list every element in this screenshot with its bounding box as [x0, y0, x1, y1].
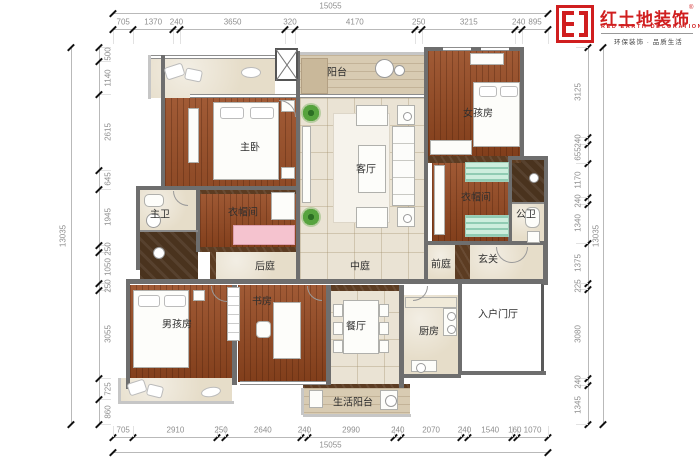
- dim-number: 1370: [144, 18, 162, 27]
- floorplan-canvas: 红土地装饰 ® RED EARTH DECORATION 环保装饰 · 品质生活…: [0, 0, 700, 467]
- dim-tick: [544, 10, 551, 17]
- dim-number: 2990: [342, 426, 360, 435]
- dim-ext: [415, 31, 416, 44]
- washing-machine: [380, 390, 398, 410]
- dim-number: 240: [298, 426, 311, 435]
- dim-number: 1070: [524, 426, 542, 435]
- dim-number: 1540: [481, 426, 499, 435]
- room-entry-hall: [462, 283, 544, 371]
- logo-mark-icon: [556, 5, 594, 43]
- dim-number: 1945: [104, 208, 113, 226]
- dim-number: 15055: [319, 2, 341, 11]
- label-boy-room: 男孩房: [162, 316, 192, 331]
- dim-number: 1140: [104, 69, 113, 86]
- wardrobe: [434, 165, 445, 235]
- wall: [136, 186, 140, 270]
- wall: [543, 241, 548, 285]
- wardrobe: [188, 108, 199, 163]
- wall: [196, 190, 200, 252]
- dim-ext: [576, 243, 588, 244]
- dim-number: 1170: [574, 172, 583, 189]
- bay-window: [150, 55, 275, 59]
- chair: [379, 340, 389, 353]
- dim-number: 500: [104, 48, 113, 61]
- label-public-bath: 公卫: [516, 206, 536, 221]
- dim-number: 2615: [104, 123, 113, 141]
- dim-number: 160: [508, 426, 521, 435]
- dim-ext: [180, 31, 181, 44]
- wardrobe: [430, 140, 472, 155]
- stove: [443, 308, 457, 336]
- drain: [153, 247, 165, 259]
- plant: [301, 207, 321, 227]
- room-master-bath-shower: [140, 232, 198, 279]
- dim-number: 240: [391, 426, 404, 435]
- dim-number: 240: [574, 194, 583, 207]
- logo-divider: [601, 33, 693, 34]
- threshold: [330, 285, 400, 291]
- label-balcony: 阳台: [327, 64, 347, 79]
- side-table: [397, 207, 415, 227]
- dim-ext: [576, 47, 588, 48]
- wall: [458, 371, 546, 375]
- balcony-railing: [303, 414, 411, 417]
- lounge-chair: [375, 59, 394, 78]
- dim-line: [588, 47, 589, 424]
- bay-railing: [118, 401, 234, 404]
- label-girl-room: 女孩房: [463, 105, 493, 120]
- nightstand: [281, 167, 295, 179]
- nightstand: [193, 290, 205, 301]
- window: [190, 94, 296, 98]
- dim-number: 3650: [224, 18, 242, 27]
- label-back-court: 后庭: [255, 258, 275, 273]
- plant: [301, 103, 321, 123]
- dim-line: [603, 47, 604, 424]
- room-public-bath-shower: [512, 160, 544, 203]
- dim-ext: [101, 378, 111, 379]
- dim-ext: [548, 426, 549, 437]
- chair: [333, 340, 343, 353]
- mat: [301, 58, 328, 94]
- cabinet: [465, 162, 509, 182]
- floorplan: 阳台 主卧 女孩房 客厅 衣帽间 主卫 衣帽间 公卫 后庭 中庭 前庭 玄关 男…: [113, 47, 548, 424]
- wall: [399, 285, 404, 388]
- dim-number: 250: [412, 18, 425, 27]
- registered-mark: ®: [689, 5, 693, 11]
- cabinet: [465, 215, 509, 237]
- window: [481, 47, 509, 51]
- cushion: [241, 67, 261, 78]
- label-kitchen: 厨房: [419, 323, 439, 338]
- dim-ext: [101, 170, 111, 171]
- dim-number: 1375: [574, 254, 583, 272]
- dim-number: 250: [214, 426, 227, 435]
- dresser: [470, 53, 504, 65]
- tv-console: [302, 126, 311, 203]
- company-logo: 红土地装饰 ® RED EARTH DECORATION 环保装饰 · 品质生活: [556, 5, 696, 49]
- chair: [333, 304, 343, 317]
- dim-ext: [101, 399, 111, 400]
- dim-tick: [544, 449, 551, 456]
- dim-number: 13035: [59, 224, 68, 246]
- dim-ext: [101, 189, 111, 190]
- cabinet: [271, 192, 295, 220]
- label-mid-court: 中庭: [350, 258, 370, 273]
- label-master-bedroom: 主卧: [240, 139, 260, 154]
- dim-tick: [67, 421, 74, 428]
- window: [443, 47, 471, 51]
- dim-ext: [295, 31, 296, 44]
- bath-divider: [512, 202, 544, 204]
- laundry-sink: [309, 390, 323, 408]
- desk: [273, 302, 301, 359]
- dim-number: 240: [458, 426, 471, 435]
- wall: [426, 47, 524, 51]
- label-front-court: 前庭: [431, 256, 451, 271]
- dim-ext: [173, 31, 174, 44]
- wall: [161, 55, 165, 190]
- dim-ext: [422, 31, 423, 44]
- shaft: [275, 48, 298, 81]
- wall: [126, 279, 547, 284]
- window: [240, 381, 326, 385]
- dim-number: 15055: [319, 441, 341, 450]
- dim-number: 705: [116, 426, 129, 435]
- sofa: [392, 126, 415, 206]
- dim-number: 3215: [460, 18, 478, 27]
- wall: [544, 156, 548, 245]
- label-cloak-right: 衣帽间: [461, 189, 491, 204]
- dim-number: 2910: [167, 426, 185, 435]
- wall: [508, 156, 548, 160]
- dim-number: 1345: [574, 396, 583, 414]
- dim-number: 3055: [104, 325, 113, 343]
- wall: [138, 186, 300, 190]
- label-cloak-left: 衣帽间: [228, 204, 258, 219]
- dim-number: 225: [574, 279, 583, 292]
- dim-ext: [548, 31, 549, 44]
- dim-ext: [522, 31, 523, 44]
- dim-ext: [113, 426, 114, 437]
- dim-ext: [515, 31, 516, 44]
- kitchen-sink: [411, 360, 437, 372]
- dim-number: 725: [104, 382, 113, 395]
- wall: [403, 374, 461, 378]
- chair: [333, 322, 343, 335]
- dim-ext: [576, 424, 588, 425]
- dim-number: 860: [104, 405, 113, 418]
- dim-number: 240: [574, 375, 583, 388]
- dim-line: [113, 13, 548, 14]
- dim-ext: [101, 61, 111, 62]
- chair: [379, 322, 389, 335]
- dim-number: 1340: [574, 215, 583, 233]
- dim-number: 895: [528, 18, 541, 27]
- label-entry-hall: 入户门厅: [478, 306, 518, 321]
- dim-line: [113, 437, 548, 438]
- brand-tagline: 环保装饰 · 品质生活: [614, 36, 683, 46]
- wall: [296, 51, 300, 284]
- dim-line: [99, 47, 100, 424]
- window: [300, 94, 424, 98]
- armchair: [356, 207, 388, 228]
- bay-side: [148, 55, 151, 99]
- threshold: [210, 252, 216, 281]
- wall: [126, 279, 130, 389]
- dim-number: 655: [574, 147, 583, 160]
- side-table: [397, 105, 415, 125]
- sink: [527, 231, 540, 243]
- small-table: [394, 65, 405, 76]
- dim-ext: [285, 31, 286, 44]
- dim-ext: [113, 31, 114, 44]
- label-study: 书房: [252, 293, 272, 308]
- dim-number: 250: [104, 242, 113, 255]
- shower-head: [529, 173, 539, 183]
- dim-number: 320: [283, 18, 296, 27]
- dim-number: 1050: [104, 258, 113, 276]
- wall: [424, 47, 428, 284]
- dim-number: 13035: [592, 224, 601, 246]
- balcony-side: [301, 388, 304, 415]
- chair: [379, 304, 389, 317]
- dim-number: 2640: [254, 426, 272, 435]
- bookshelf: [227, 287, 240, 341]
- dim-number: 645: [104, 173, 113, 186]
- dim-line: [71, 47, 72, 424]
- dim-number: 250: [104, 279, 113, 292]
- label-dining: 餐厅: [346, 318, 366, 333]
- label-entry: 玄关: [478, 251, 498, 266]
- bay-side: [118, 378, 121, 404]
- dim-ext: [101, 424, 111, 425]
- dim-number: 4170: [346, 18, 364, 27]
- dim-ext: [101, 94, 111, 95]
- dim-tick: [599, 421, 606, 428]
- chair: [256, 321, 271, 338]
- label-living-room: 客厅: [356, 161, 376, 176]
- threshold: [455, 245, 470, 281]
- wall: [520, 47, 524, 160]
- room-back-court: [210, 252, 298, 281]
- dim-ext: [133, 426, 134, 437]
- dim-number: 3080: [574, 325, 583, 343]
- dim-number: 2070: [422, 426, 440, 435]
- dim-ext: [576, 163, 588, 164]
- wall: [326, 285, 331, 385]
- bath-divider: [140, 230, 198, 232]
- dim-number: 705: [116, 18, 129, 27]
- dim-number: 240: [170, 18, 183, 27]
- label-service-balcony: 生活阳台: [333, 394, 373, 409]
- dim-number: 240: [512, 18, 525, 27]
- brand-name-english: RED EARTH DECORATION: [601, 24, 700, 30]
- wall: [458, 283, 462, 375]
- balcony-railing: [300, 52, 426, 55]
- label-master-bath: 主卫: [150, 206, 170, 221]
- armchair: [356, 105, 388, 126]
- chaise: [233, 225, 295, 245]
- dim-number: 3125: [574, 83, 583, 101]
- dim-ext: [133, 31, 134, 44]
- dim-number: 240: [574, 134, 583, 147]
- dim-line: [113, 452, 548, 453]
